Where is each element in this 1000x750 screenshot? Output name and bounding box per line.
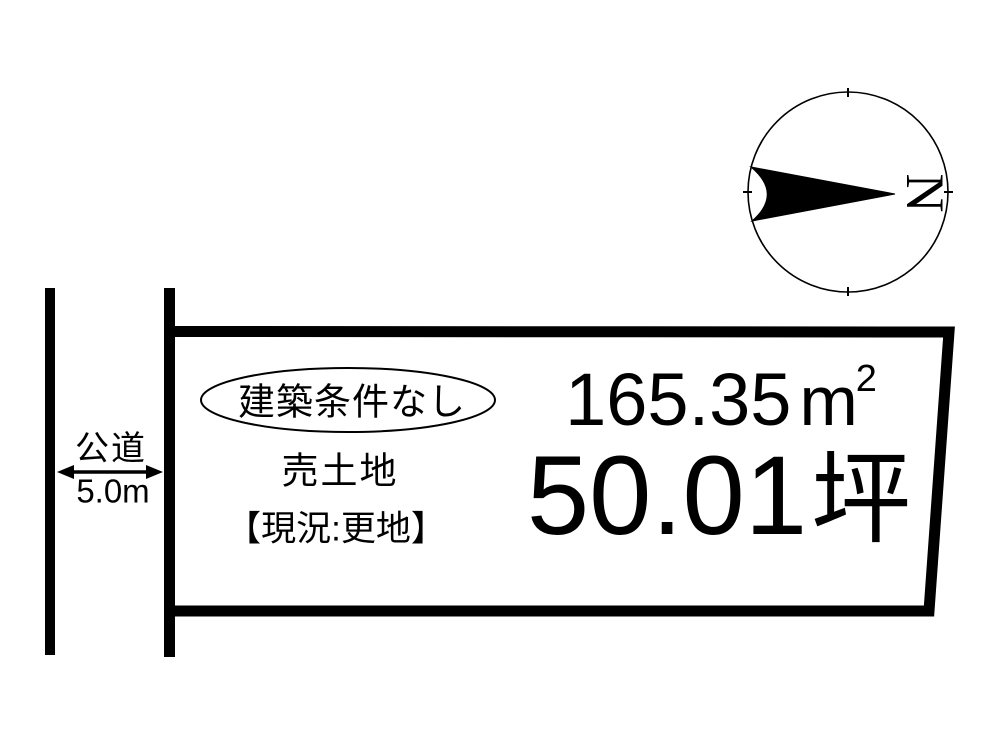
area-tsubo-value: 50.01	[527, 440, 807, 552]
compass-north-label: N	[898, 174, 952, 213]
plot-status: 【現況:更地】	[226, 512, 446, 547]
compass-north-arrow	[751, 167, 895, 221]
area-sqm-unit: m	[799, 366, 857, 436]
building-condition-badge: 建築条件なし	[238, 384, 466, 421]
area-sqm: 165.35 m 2	[565, 363, 879, 437]
area-tsubo: 50.01 坪	[527, 440, 911, 552]
plot-title: 売土地	[282, 453, 399, 490]
area-sqm-value: 165.35	[565, 363, 791, 437]
area-tsubo-unit: 坪	[811, 450, 911, 550]
road-label: 公道	[75, 432, 147, 466]
road-width-value: 5.0m	[76, 475, 149, 508]
road-width-arrowhead-left	[57, 465, 74, 479]
land-plot-diagram: 公道 5.0m 建築条件なし 売土地 【現況:更地】 165.35 m 2 50…	[0, 0, 1000, 750]
